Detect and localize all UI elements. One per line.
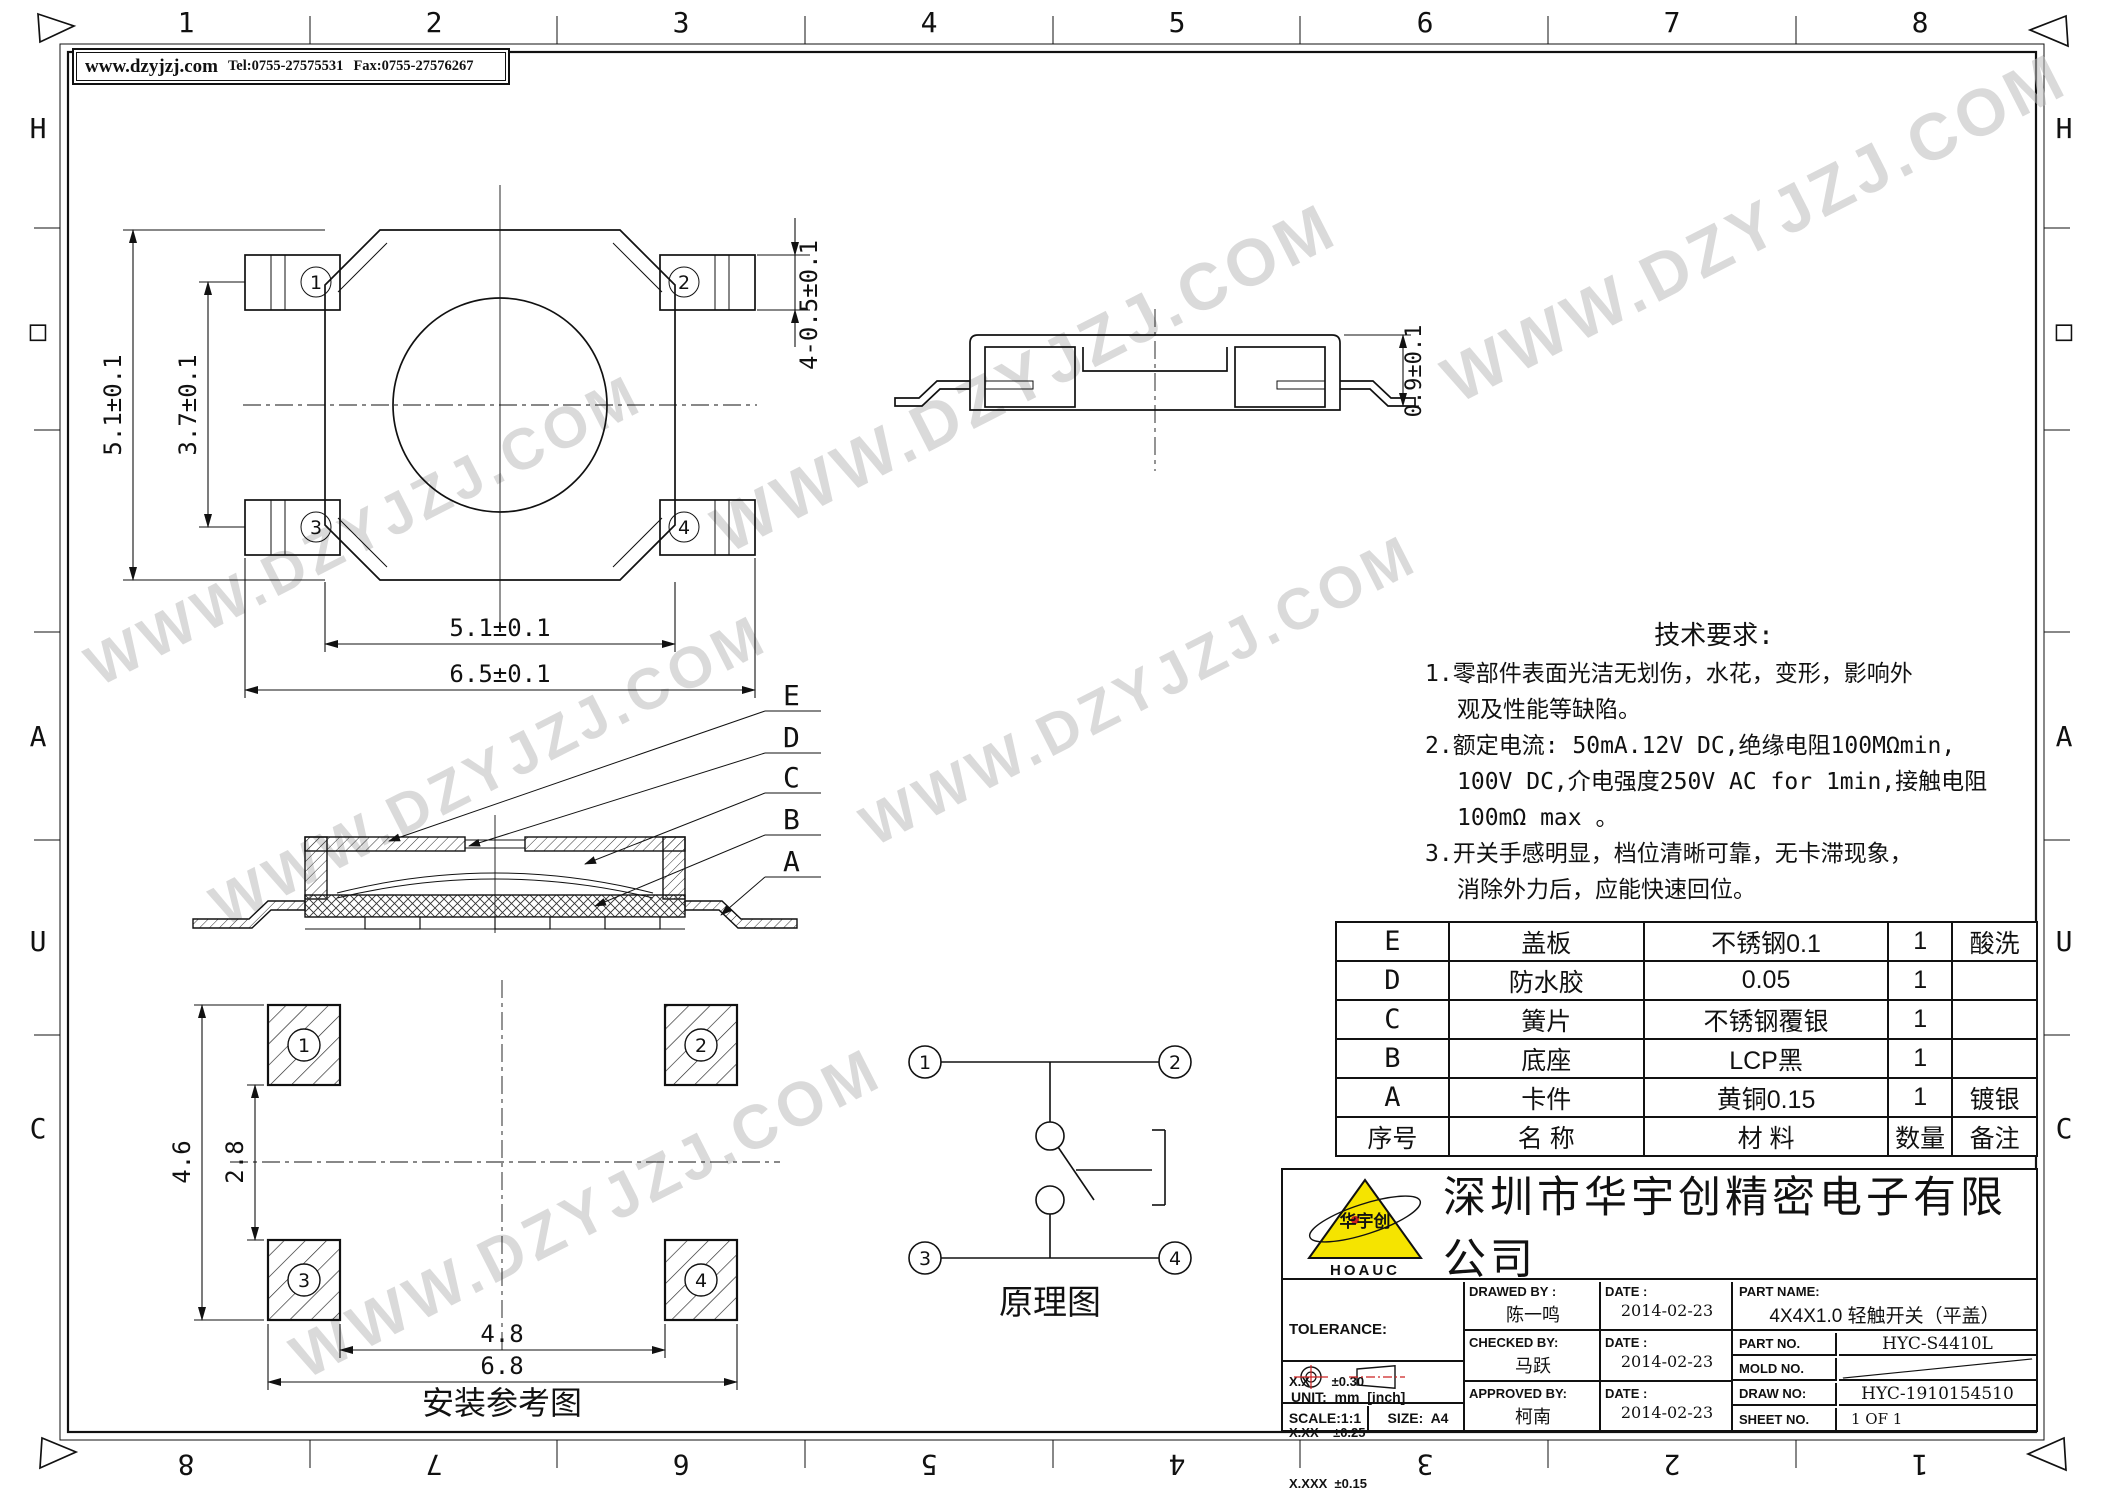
title-block: 华宇创 HOAUC 深圳市华宇创精密电子有限公司 TOLERANCE: X.X … bbox=[1281, 1168, 2038, 1432]
zone-number-bottom: 6 bbox=[665, 1448, 697, 1481]
empty-diagonal-line bbox=[1839, 1358, 2036, 1379]
zone-letter-left: A bbox=[22, 720, 54, 753]
website-url: www.dzyjzj.com bbox=[85, 56, 218, 78]
parts-table: E 盖板 不锈钢0.1 1 酸洗 D 防水胶 0.05 1 C 簧片 不锈钢覆银… bbox=[1335, 921, 2038, 1157]
sheet-no-cell: SHEET NO. bbox=[1733, 1408, 1837, 1430]
table-row: E 盖板 不锈钢0.1 1 酸洗 bbox=[1336, 922, 2037, 961]
svg-text:4.8: 4.8 bbox=[480, 1320, 523, 1348]
svg-text:4-0.5±0.1: 4-0.5±0.1 bbox=[795, 240, 823, 370]
company-name: 深圳市华宇创精密电子有限公司 bbox=[1443, 1170, 2028, 1280]
zone-number-top: 6 bbox=[1409, 6, 1441, 39]
drawing-sheet: WWW.DZYJZJ.COM WWW.DZYJZJ.COM WWW.DZYJZJ… bbox=[0, 0, 2105, 1488]
svg-text:0.9±0.1: 0.9±0.1 bbox=[1402, 325, 1427, 418]
mount-reference-drawing: 1 2 3 4 4.6 2.8 4.8 6.8 安装参考图 bbox=[150, 950, 830, 1420]
zone-number-top: 7 bbox=[1656, 6, 1688, 39]
svg-text:1: 1 bbox=[919, 1052, 931, 1074]
zone-number-bottom: 4 bbox=[1161, 1448, 1193, 1481]
svg-text:4: 4 bbox=[678, 517, 690, 539]
header-contact-box: www.dzyjzj.com Tel:0755-27575531 Fax:075… bbox=[72, 48, 510, 85]
part-no-value: HYC-S4410L bbox=[1839, 1333, 2036, 1356]
zone-number-top: 2 bbox=[418, 6, 450, 39]
drawed-by-cell: DRAWED BY : 陈一鸣 bbox=[1465, 1282, 1601, 1331]
svg-text:1: 1 bbox=[310, 272, 322, 294]
logo-en-text: HOAUC bbox=[1330, 1262, 1400, 1278]
table-row: C 簧片 不锈钢覆银 1 bbox=[1336, 1000, 2037, 1039]
checked-by-cell: CHECKED BY: 马跃 bbox=[1465, 1333, 1601, 1382]
zone-number-top: 8 bbox=[1904, 6, 1936, 39]
section-label-C: C bbox=[783, 761, 800, 794]
date-cell: DATE : 2014-02-23 bbox=[1601, 1282, 1733, 1331]
mount-pads: 1 2 3 4 bbox=[268, 1005, 737, 1320]
tolerance-block: TOLERANCE: X.X ±0.30 X.XX ±0.25 X.XXX ±0… bbox=[1283, 1282, 1465, 1362]
section-view-drawing: E D C B A bbox=[165, 665, 845, 935]
zone-letter-left: U bbox=[22, 925, 54, 958]
scale-cell: SCALE:1:1 bbox=[1283, 1406, 1369, 1430]
sheet-no-value: 1 OF 1 bbox=[1839, 1408, 2036, 1430]
svg-text:2: 2 bbox=[1169, 1052, 1181, 1074]
fax-number: Fax:0755-27576267 bbox=[353, 58, 473, 75]
table-row: B 底座 LCP黑 1 bbox=[1336, 1039, 2037, 1078]
table-header-row: 序号 名 称 材 料 数量 备注 bbox=[1336, 1117, 2037, 1156]
svg-text:1: 1 bbox=[298, 1035, 310, 1057]
svg-text:4: 4 bbox=[695, 1270, 707, 1292]
table-row: D 防水胶 0.05 1 bbox=[1336, 961, 2037, 1000]
zone-number-top: 3 bbox=[665, 6, 697, 39]
tech-requirement-line: 消除外力后，应能快速回位。 bbox=[1425, 872, 2003, 908]
technical-requirements: 技术要求: 1.零部件表面光洁无划伤，水花，变形，影响外 观及性能等缺陷。 2.… bbox=[1425, 618, 2003, 908]
section-label-B: B bbox=[783, 803, 800, 836]
dim-pin-span bbox=[199, 282, 245, 527]
svg-text:2: 2 bbox=[695, 1035, 707, 1057]
zone-letter-left: □ bbox=[22, 314, 54, 347]
tolerance-title: TOLERANCE: bbox=[1289, 1321, 1459, 1338]
tech-requirement-line: 2.额定电流: 50mA.12V DC,绝缘电阻100MΩmin, bbox=[1425, 728, 2003, 764]
zone-letter-right: U bbox=[2048, 925, 2080, 958]
schematic-caption: 原理图 bbox=[999, 1284, 1101, 1322]
part-name-cell: PART NAME: 4X4X1.0 轻触开关（平盖） bbox=[1733, 1282, 2036, 1331]
phone-number: Tel:0755-27575531 bbox=[228, 58, 343, 75]
svg-text:2.8: 2.8 bbox=[221, 1140, 249, 1183]
svg-text:3: 3 bbox=[919, 1248, 931, 1270]
section-label-E: E bbox=[783, 679, 800, 712]
section-label-D: D bbox=[783, 721, 800, 754]
svg-text:4.6: 4.6 bbox=[168, 1140, 196, 1183]
svg-text:3: 3 bbox=[298, 1270, 310, 1292]
mount-caption: 安装参考图 bbox=[422, 1385, 582, 1420]
approved-by-cell: APPROVED BY: 柯南 bbox=[1465, 1384, 1601, 1430]
zone-letter-right: A bbox=[2048, 720, 2080, 753]
table-row: A 卡件 黄铜0.15 1 镀银 bbox=[1336, 1078, 2037, 1117]
zone-letter-right: C bbox=[2048, 1112, 2080, 1145]
tech-requirement-line: 1.零部件表面光洁无划伤，水花，变形，影响外 bbox=[1425, 656, 2003, 692]
zone-number-bottom: 5 bbox=[913, 1448, 945, 1481]
svg-text:5.1±0.1: 5.1±0.1 bbox=[99, 354, 127, 455]
svg-text:6.8: 6.8 bbox=[480, 1352, 523, 1380]
schematic-drawing: 1 2 3 4 原理图 bbox=[880, 1000, 1220, 1330]
part-name-value: 4X4X1.0 轻触开关（平盖） bbox=[1733, 1301, 2036, 1328]
svg-text:3: 3 bbox=[310, 517, 322, 539]
tech-requirement-line: 100mΩ max 。 bbox=[1425, 800, 2003, 836]
tech-requirement-line: 观及性能等缺陷。 bbox=[1425, 692, 2003, 728]
zone-letter-left: C bbox=[22, 1112, 54, 1145]
zone-number-bottom: 8 bbox=[170, 1448, 202, 1481]
tech-requirement-line: 100V DC,介电强度250V AC for 1min,接触电阻 bbox=[1425, 764, 2003, 800]
svg-text:4: 4 bbox=[1169, 1248, 1181, 1270]
zone-number-bottom: 1 bbox=[1904, 1448, 1936, 1481]
projection-unit-cell: UNIT: mm [inch] bbox=[1283, 1364, 1465, 1404]
svg-text:2: 2 bbox=[678, 272, 690, 294]
date-cell: DATE : 2014-02-23 bbox=[1601, 1384, 1733, 1430]
section-leaders bbox=[389, 711, 821, 915]
zone-number-top: 1 bbox=[170, 6, 202, 39]
unit-label: UNIT: mm [inch] bbox=[1291, 1389, 1465, 1405]
projection-symbol bbox=[1289, 1365, 1429, 1389]
company-logo: 华宇创 HOAUC bbox=[1293, 1174, 1438, 1278]
svg-text:5.1±0.1: 5.1±0.1 bbox=[449, 614, 550, 642]
tech-requirements-title: 技术要求: bbox=[1425, 618, 2003, 654]
section-label-A: A bbox=[783, 845, 800, 878]
zone-number-bottom: 7 bbox=[418, 1448, 450, 1481]
top-view-drawing: 1 2 3 4 5.1±0.1 3. bbox=[95, 130, 865, 705]
zone-number-top: 5 bbox=[1161, 6, 1193, 39]
side-view-drawing: 0.9±0.1 bbox=[885, 295, 1445, 485]
zone-number-bottom: 2 bbox=[1656, 1448, 1688, 1481]
zone-letter-right: □ bbox=[2048, 314, 2080, 347]
mold-no-cell: MOLD NO. bbox=[1733, 1358, 1837, 1381]
svg-text:3.7±0.1: 3.7±0.1 bbox=[174, 354, 202, 455]
tech-requirement-line: 3.开关手感明显，档位清晰可靠，无卡滞现象， bbox=[1425, 836, 2003, 872]
draw-no-value: HYC-1910154510 bbox=[1839, 1383, 2036, 1406]
dim-pad-inner-v bbox=[247, 1085, 264, 1240]
mold-no-value bbox=[1839, 1358, 2036, 1381]
size-cell: SIZE: A4 bbox=[1371, 1406, 1465, 1430]
zone-number-top: 4 bbox=[913, 6, 945, 39]
date-cell: DATE : 2014-02-23 bbox=[1601, 1333, 1733, 1382]
draw-no-cell: DRAW NO: bbox=[1733, 1383, 1837, 1406]
logo-cn-text: 华宇创 bbox=[1340, 1211, 1391, 1231]
zone-letter-left: H bbox=[22, 112, 54, 145]
part-no-cell: PART NO. bbox=[1733, 1333, 1837, 1356]
